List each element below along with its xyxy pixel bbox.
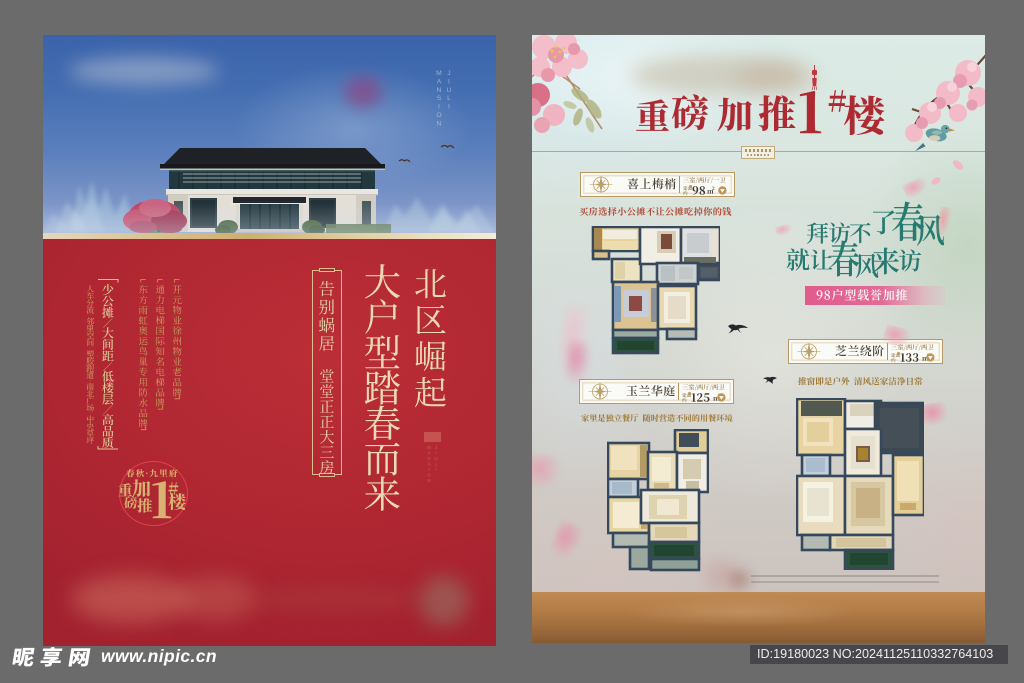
svg-text:N: N (437, 120, 442, 127)
svg-text:O: O (436, 112, 441, 119)
svg-text:A: A (437, 78, 442, 85)
svg-text:L: L (447, 95, 451, 102)
svg-text:J: J (447, 70, 450, 77)
svg-text:S: S (437, 95, 442, 102)
svg-text:M: M (436, 70, 442, 77)
svg-text:U: U (447, 87, 452, 94)
svg-text:I: I (448, 78, 450, 85)
svg-text:N: N (437, 87, 442, 94)
svg-text:I: I (438, 104, 440, 111)
svg-text:I: I (448, 104, 450, 111)
